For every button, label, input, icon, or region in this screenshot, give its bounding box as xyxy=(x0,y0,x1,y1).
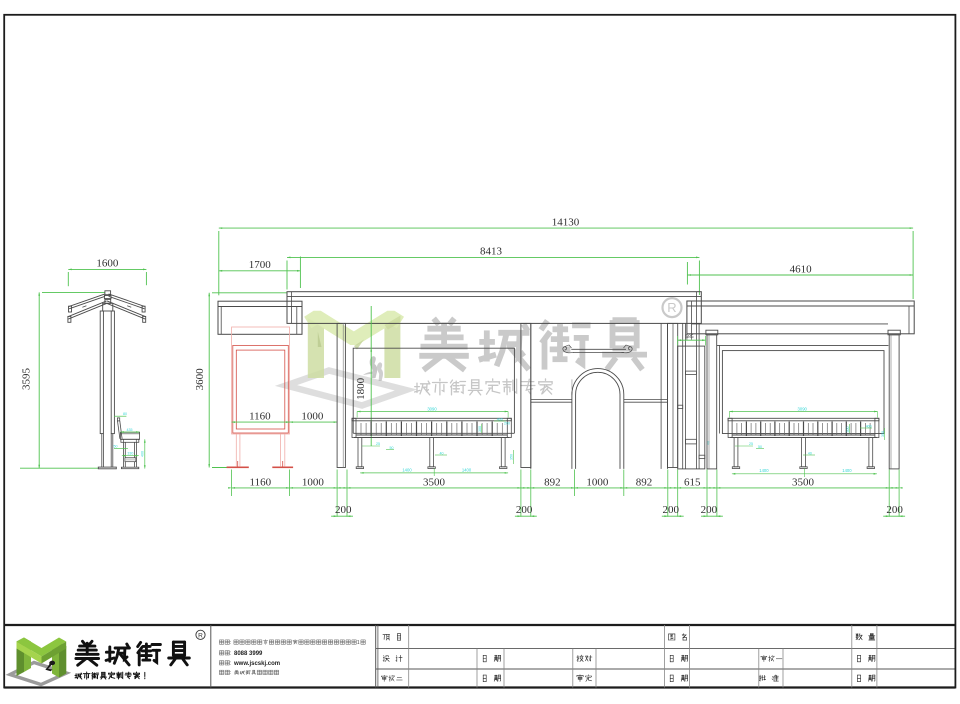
svg-text:50: 50 xyxy=(114,445,118,449)
svg-text:40: 40 xyxy=(808,452,812,456)
svg-text:1000: 1000 xyxy=(301,410,324,422)
svg-text:200: 200 xyxy=(335,504,352,516)
svg-text:200: 200 xyxy=(504,421,510,425)
svg-text:1400: 1400 xyxy=(402,468,412,473)
svg-text:40: 40 xyxy=(440,452,444,456)
svg-text:3500: 3500 xyxy=(792,477,815,489)
svg-text:350: 350 xyxy=(881,431,885,437)
svg-text:300: 300 xyxy=(846,427,850,433)
svg-text::: : xyxy=(230,651,231,657)
svg-text:R: R xyxy=(667,300,676,315)
svg-text:200: 200 xyxy=(886,504,903,516)
svg-text:1: 1 xyxy=(357,640,360,646)
svg-text::: : xyxy=(230,640,231,646)
svg-text:892: 892 xyxy=(544,477,561,489)
svg-text:50: 50 xyxy=(758,445,762,449)
svg-text:1160: 1160 xyxy=(249,410,271,422)
svg-text::: : xyxy=(230,661,231,667)
svg-text:1400: 1400 xyxy=(759,468,769,473)
svg-text:1400: 1400 xyxy=(462,468,472,473)
svg-text:1400: 1400 xyxy=(842,468,852,473)
svg-text:1600: 1600 xyxy=(96,257,119,269)
svg-text:400: 400 xyxy=(497,418,503,422)
svg-text:3500: 3500 xyxy=(423,477,446,489)
svg-text:80: 80 xyxy=(123,412,127,416)
svg-text:25: 25 xyxy=(749,442,753,446)
svg-text:14130: 14130 xyxy=(552,216,580,228)
svg-text:R: R xyxy=(198,632,203,639)
svg-text:3595: 3595 xyxy=(21,368,33,391)
svg-text:350: 350 xyxy=(510,454,514,460)
svg-text:615: 615 xyxy=(684,477,701,489)
svg-text:1000: 1000 xyxy=(302,477,325,489)
svg-text:8413: 8413 xyxy=(480,246,503,258)
svg-text:892: 892 xyxy=(636,477,653,489)
svg-text:585: 585 xyxy=(685,334,694,340)
svg-text::: : xyxy=(230,670,231,676)
svg-text:8088 3999: 8088 3999 xyxy=(234,651,263,657)
svg-text:300: 300 xyxy=(478,426,482,432)
svg-text:www.jscskj.com: www.jscskj.com xyxy=(233,661,280,667)
svg-text:400: 400 xyxy=(141,451,145,457)
svg-text:4610: 4610 xyxy=(790,263,813,275)
svg-text:400: 400 xyxy=(866,425,872,429)
svg-text:3600: 3600 xyxy=(194,368,206,391)
svg-text:50: 50 xyxy=(390,446,394,450)
svg-text:1800: 1800 xyxy=(355,377,367,400)
svg-text:25: 25 xyxy=(376,442,380,446)
svg-text:435: 435 xyxy=(127,428,133,432)
svg-text:1700: 1700 xyxy=(249,259,272,271)
svg-text:3090: 3090 xyxy=(427,406,437,411)
svg-text:200: 200 xyxy=(516,504,533,516)
svg-text:1160: 1160 xyxy=(250,477,272,489)
svg-text:1000: 1000 xyxy=(586,477,609,489)
svg-text:200: 200 xyxy=(701,504,718,516)
svg-text:200: 200 xyxy=(662,504,679,516)
svg-text:3090: 3090 xyxy=(798,406,808,411)
svg-text:330: 330 xyxy=(127,452,133,456)
